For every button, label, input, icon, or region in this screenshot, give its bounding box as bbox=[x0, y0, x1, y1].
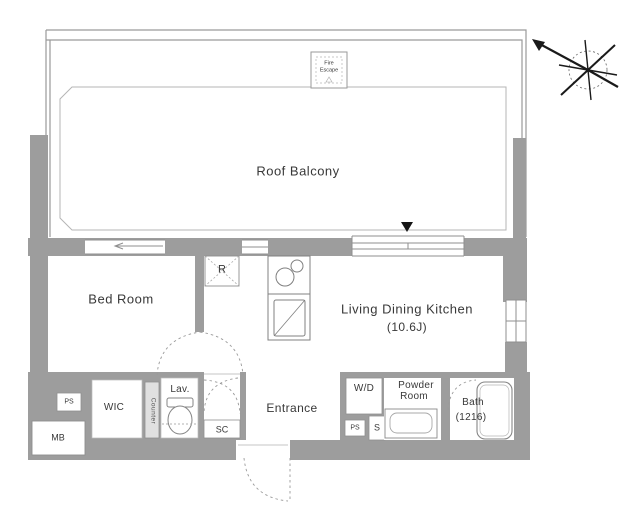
floor-plan-drawing bbox=[0, 0, 640, 507]
compass-north-arrow-icon bbox=[532, 39, 618, 100]
entrance-label: Entrance bbox=[266, 402, 317, 414]
bathtub-icon bbox=[477, 382, 512, 439]
ldk-label: Living Dining Kitchen bbox=[341, 303, 473, 316]
counter-label: Counter bbox=[149, 398, 156, 425]
washbasin-icon bbox=[385, 409, 437, 438]
entrance-door-gap bbox=[236, 440, 290, 460]
bed-room-label: Bed Room bbox=[88, 293, 153, 306]
kitchen-counter bbox=[268, 256, 310, 340]
fire-escape-label-1: Fire bbox=[324, 61, 333, 67]
bath-label: Bath bbox=[462, 398, 484, 408]
lavatory-label: Lav. bbox=[170, 385, 189, 395]
powder-room-label-1: Powder bbox=[398, 381, 434, 391]
balcony-railing bbox=[46, 30, 526, 237]
pipe-shaft-right-label: PS bbox=[350, 425, 359, 432]
balcony-floor-outline bbox=[60, 87, 506, 230]
washer-dryer-label: W/D bbox=[354, 384, 374, 394]
fire-escape-label-2: Escape bbox=[320, 68, 338, 74]
meter-box-label: MB bbox=[51, 434, 65, 443]
bath-size-label: (1216) bbox=[456, 413, 487, 423]
sink-icon bbox=[276, 268, 294, 286]
sink-small-icon bbox=[291, 260, 303, 272]
wic-label: WIC bbox=[104, 403, 124, 413]
powder-room-label-2: Room bbox=[400, 392, 428, 402]
valve-label: S bbox=[374, 424, 380, 433]
pipe-shaft-left-label: PS bbox=[64, 399, 73, 406]
ldk-size-label: (10.6J) bbox=[387, 321, 427, 333]
shoe-cupboard-label: SC bbox=[216, 426, 229, 435]
refrigerator-label: R bbox=[218, 265, 226, 276]
floor-plan: Roof Balcony Fire Escape Bed Room R Livi… bbox=[0, 0, 640, 507]
roof-balcony-label: Roof Balcony bbox=[256, 165, 339, 178]
